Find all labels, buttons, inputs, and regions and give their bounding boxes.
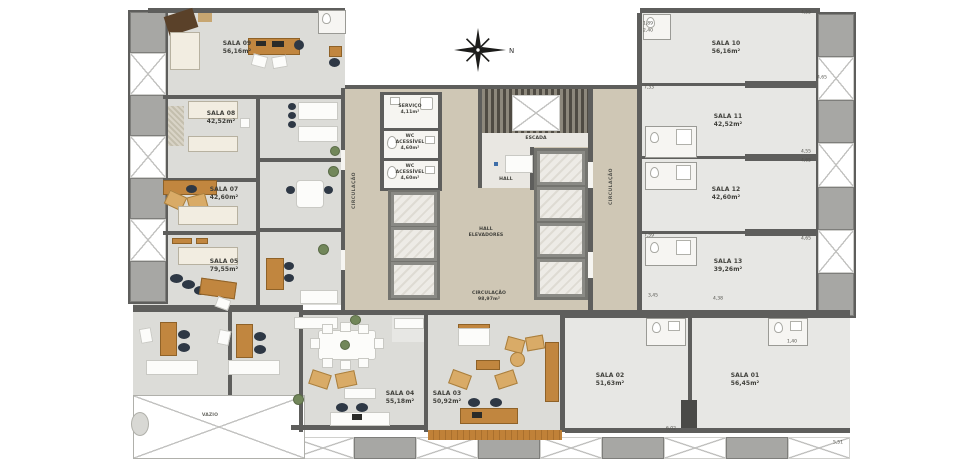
furniture-chair-dark [288,121,296,128]
room-area: 79,55m² [210,266,239,274]
desk-item [472,412,482,418]
facade-x-panel [130,219,166,260]
dimension-label: 3,45 [648,294,658,299]
dimension-label: 6,02 [666,427,676,432]
facade-x-panel [664,437,726,459]
furniture-bed [188,136,238,152]
furniture-chair-dark [329,58,340,67]
stair-landing [512,95,560,131]
furniture-chair-dark [288,103,296,110]
room-area: 51,63m² [596,380,625,388]
room-label-sala-11: SALA 1142,52m² [714,113,743,129]
vazio-label: VAZIO [202,413,218,419]
hall-label: HALL [499,177,513,183]
room-label-sala-01: SALA 0156,45m² [731,372,760,388]
elevator-car [391,262,437,298]
hall-marker [494,162,498,166]
elevator-car [537,187,585,221]
furniture-chair-dark [178,343,190,352]
room-name: SALA 09 [223,40,252,48]
shower-fixture [676,129,692,145]
circulacao-left-label: CIRCULAÇÃO [352,172,357,209]
wall [637,13,642,312]
furniture-chair-dark [182,280,195,289]
wc-acessivel-label-1: WC ACESSÍVEL4,60m² [396,134,425,152]
room-area: 4,11m² [398,110,421,116]
facade-x-panel [416,437,478,459]
elevator-car [537,259,585,297]
room-label-sala-04: SALA 0455,18m² [386,390,415,406]
plant [318,244,329,255]
furniture-chair [139,327,153,344]
wall [163,95,345,99]
dimension-label: 7,33 [644,86,654,91]
sink-fixture [425,166,435,174]
wc-sala-02 [646,318,686,346]
dimension-label: 5,51 [833,441,843,446]
zone-area: 98,97m² [472,297,506,303]
facade-slab [130,12,166,53]
room-name: SALA 04 [386,390,415,398]
dimension-label: 4,65 [801,237,811,242]
room-label-sala-05: SALA 0579,55m² [210,258,239,274]
toilet-fixture [322,13,331,24]
facade-x-panel [130,53,166,94]
wall [258,158,345,162]
room-area: 4,60m² [396,176,425,182]
escada-label: ESCADA [525,136,546,142]
room-name: SALA 10 [712,40,741,48]
furniture-chair-dark [186,185,197,193]
plant [293,394,304,405]
furniture-chair-dark [288,112,296,119]
door-opening [588,252,593,278]
furniture-desk [160,322,177,356]
furniture-sideboard [344,388,376,399]
room-area: 56,16m² [223,48,252,56]
washer-fixture [420,97,433,110]
room-area: 42,60m² [210,194,239,202]
room-name: SALA 07 [210,186,239,194]
furniture-chair-dark [286,186,295,194]
left-facade [128,10,168,304]
wall [258,228,345,232]
furniture-desk [236,324,253,358]
floor-plan: SALA 0956,16m² SALA 0842,52m² SALA 0742,… [0,0,980,470]
furniture-cabinet [545,342,559,402]
facade-x-panel [818,230,854,273]
furniture-table [296,180,324,208]
furniture-desk [266,258,284,290]
furniture-chair-dark [284,274,294,282]
furniture-chair-dark [170,274,183,283]
wall [341,88,345,312]
elevator-shaft-right [534,148,588,300]
plant [330,146,340,156]
furniture-nightstand [240,118,250,128]
furniture-coffee-table [510,352,525,367]
furniture-credenza [146,360,198,375]
elevator-shaft-left [388,190,440,300]
room-area: 4,60m² [396,146,425,152]
furniture-chair-dark [178,330,190,339]
wc-acessivel-label-2: WC ACESSÍVEL4,60m² [396,164,425,182]
room-area: 55,18m² [386,398,415,406]
decor-stone [131,412,149,436]
facade-slab [818,187,854,230]
door-leaf [172,238,192,244]
elevator-car [391,192,437,226]
room-name: SALA 01 [731,372,760,380]
sink-fixture [790,321,802,331]
sink-fixture [668,321,680,331]
wall [424,315,428,432]
bottom-facade-band [292,437,850,459]
wall [256,95,260,310]
room-name: SALA 08 [207,110,236,118]
room-name: SALA 12 [712,186,741,194]
toilet-fixture [652,322,661,333]
room-area: 42,52m² [207,118,236,126]
dimension-label: 1,40 [787,340,797,345]
desk-item [272,41,284,47]
circulacao-central-label: CIRCULAÇÃO98,97m² [472,291,506,303]
servico-label: SERVIÇO4,11m² [398,104,421,116]
furniture-desk [298,126,338,142]
furniture-chair [322,358,333,368]
facade-slab [602,437,664,459]
furniture-desk [298,102,338,120]
room-area: 56,16m² [712,48,741,56]
dimension-label: 4,38 [713,297,723,302]
room-label-sala-12: SALA 1242,60m² [712,186,741,202]
furniture-counter [394,318,424,329]
hall-elevadores-label: HALL ELEVADORES [469,227,504,239]
compass-rose-icon: N [452,22,516,78]
plant [328,166,339,177]
room-area: 39,26m² [714,266,743,274]
furniture-desk [460,408,518,424]
room-area: 42,60m² [712,194,741,202]
furniture-chair-dark [284,262,294,270]
room-name: SALA 05 [210,258,239,266]
facade-slab [354,437,416,459]
room-name: SALA 03 [433,390,462,398]
furniture-bed [170,32,200,70]
room-area: 56,45m² [731,380,760,388]
furniture-chair [271,55,288,69]
elevator-car [391,227,437,261]
facade-x-panel [540,437,602,459]
dimension-label: 1,89 [643,22,653,27]
wall [438,92,442,191]
room-area: 50,92m² [433,398,462,406]
facade-slab [130,95,166,136]
desk-item [352,414,362,420]
facade-slab [478,437,540,459]
wall [745,229,818,236]
door-opening [341,150,345,170]
wall [560,315,565,432]
furniture-bed [178,206,238,225]
furniture-shelf [476,360,500,370]
furniture-sofa [458,328,490,346]
dimension-label: 2,40 [643,29,653,34]
furniture-chair [374,338,384,349]
toilet-fixture [774,322,783,333]
door-opening [588,162,593,188]
toilet-fixture [650,167,659,178]
dimension-label: 7,59 [644,234,654,239]
furniture-chair [322,324,333,334]
furniture-chair [329,46,342,57]
room-label-sala-07: SALA 0742,60m² [210,186,239,202]
facade-slab [130,261,166,302]
room-name: SALA 11 [714,113,743,121]
wall [745,81,818,88]
sink-fixture [425,136,435,144]
dimension-label: 4,55 [801,11,811,16]
furniture-chair [358,358,369,368]
facade-x-panel [130,136,166,177]
room-name: SALA 13 [714,258,743,266]
room-area: 42,52m² [714,121,743,129]
furniture-rug [168,106,184,146]
door-leaf [196,238,208,244]
wall [163,231,258,235]
wall [228,312,232,395]
circulacao-right-label: CIRCULAÇÃO [609,168,614,205]
furniture-chair [340,360,351,370]
furniture-rug [198,13,212,22]
wall [565,428,850,433]
furniture-chair [358,324,369,334]
plant-centerpiece [340,340,350,350]
room-label-sala-08: SALA 0842,52m² [207,110,236,126]
toilet-fixture [650,132,659,143]
north-label: N [509,47,514,55]
room-label-sala-03: SALA 0350,92m² [433,390,462,406]
room-name: WC ACESSÍVEL [396,164,425,176]
wall [299,312,303,432]
facade-slab [818,100,854,143]
dimension-label: 4,65 [817,76,827,81]
furniture-chair-dark [254,345,266,354]
toilet-fixture [650,242,659,253]
desk-item [256,41,266,46]
furniture-chair-dark [336,403,348,412]
room-label-sala-13: SALA 1339,26m² [714,258,743,274]
furniture-chair [340,322,351,332]
facade-slab [130,178,166,219]
room-name: SALA 02 [596,372,625,380]
facade-slab [818,14,854,57]
furniture-chair-dark [324,186,333,194]
elevator-car [537,223,585,257]
furniture-credenza [300,290,338,304]
vazio-void-area [133,395,305,459]
furniture-chair-dark [294,40,304,50]
room-name: WC ACESSÍVEL [396,134,425,146]
room-label-sala-09: SALA 0956,16m² [223,40,252,56]
right-facade [816,12,856,318]
facade-slab [726,437,788,459]
furniture-chair-dark [254,332,266,341]
dimension-label: 4,65 [801,159,811,164]
furniture-chair-dark [356,403,368,412]
dimension-label: 4,55 [801,150,811,155]
furniture-chair-dark [490,398,502,407]
wood-deck [428,430,562,440]
elevator-car [537,151,585,185]
structural-pillar [681,400,697,430]
shower-fixture [676,165,691,180]
wall [588,88,593,312]
floor-bottom-left-rooms [133,312,303,395]
hall-desk [505,155,533,173]
furniture-chair-dark [468,398,480,407]
wall [640,8,820,13]
furniture-credenza [228,360,280,375]
door-opening [341,250,345,270]
shower-fixture [676,240,691,255]
facade-x-panel [818,143,854,186]
room-label-sala-10: SALA 1056,16m² [712,40,741,56]
furniture-chair [310,338,320,349]
room-label-sala-02: SALA 0251,63m² [596,372,625,388]
